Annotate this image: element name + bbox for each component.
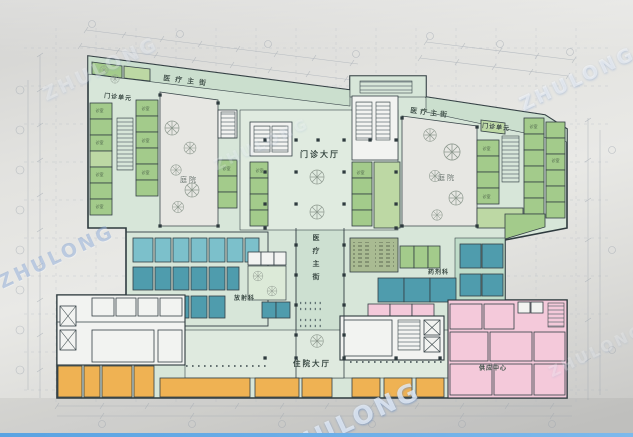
label-courtyard-right: 庭院 <box>438 175 456 182</box>
room-label: 诊室 <box>141 138 149 143</box>
room-label: 诊室 <box>95 172 103 177</box>
floor-plan-drawing <box>0 0 633 437</box>
label-courtyard-left: 庭院 <box>180 177 198 184</box>
room-label: 诊室 <box>95 204 103 209</box>
room-label: 诊室 <box>529 124 537 129</box>
room-label: 诊室 <box>551 158 559 163</box>
label-medical-street-vertical: 医疗主街 <box>312 234 319 286</box>
service-rooms-bottom-center <box>340 316 444 360</box>
room-label: 诊室 <box>482 194 490 199</box>
room-label: 诊室 <box>95 108 103 113</box>
label-inpatient-hall: 住院大厅 <box>293 360 331 368</box>
label-outpatient-hall: 门诊大厅 <box>300 151 340 159</box>
room-label: 诊室 <box>482 146 490 151</box>
courtyard-right-floor <box>402 116 477 226</box>
service-rooms-bottom-left <box>57 295 185 365</box>
room-label: 诊室 <box>356 170 364 175</box>
room-label: 诊室 <box>141 170 149 175</box>
courtyard-left-floor <box>160 92 218 226</box>
floor-plan-canvas: 医疗主街 医疗主街 门诊单元 门诊单元 门诊大厅 庭院 庭院 医疗主街 住院大厅… <box>0 0 633 437</box>
room-label: 诊室 <box>141 106 149 111</box>
room-label: 诊室 <box>95 140 103 145</box>
room-label: 诊室 <box>222 166 230 171</box>
bottom-accent-bar <box>0 433 633 437</box>
label-radiology: 放射科 <box>234 296 255 302</box>
label-supply-center: 供应中心 <box>479 366 507 372</box>
room-label: 诊室 <box>255 168 263 173</box>
label-pharmacy: 药剂科 <box>428 270 449 276</box>
